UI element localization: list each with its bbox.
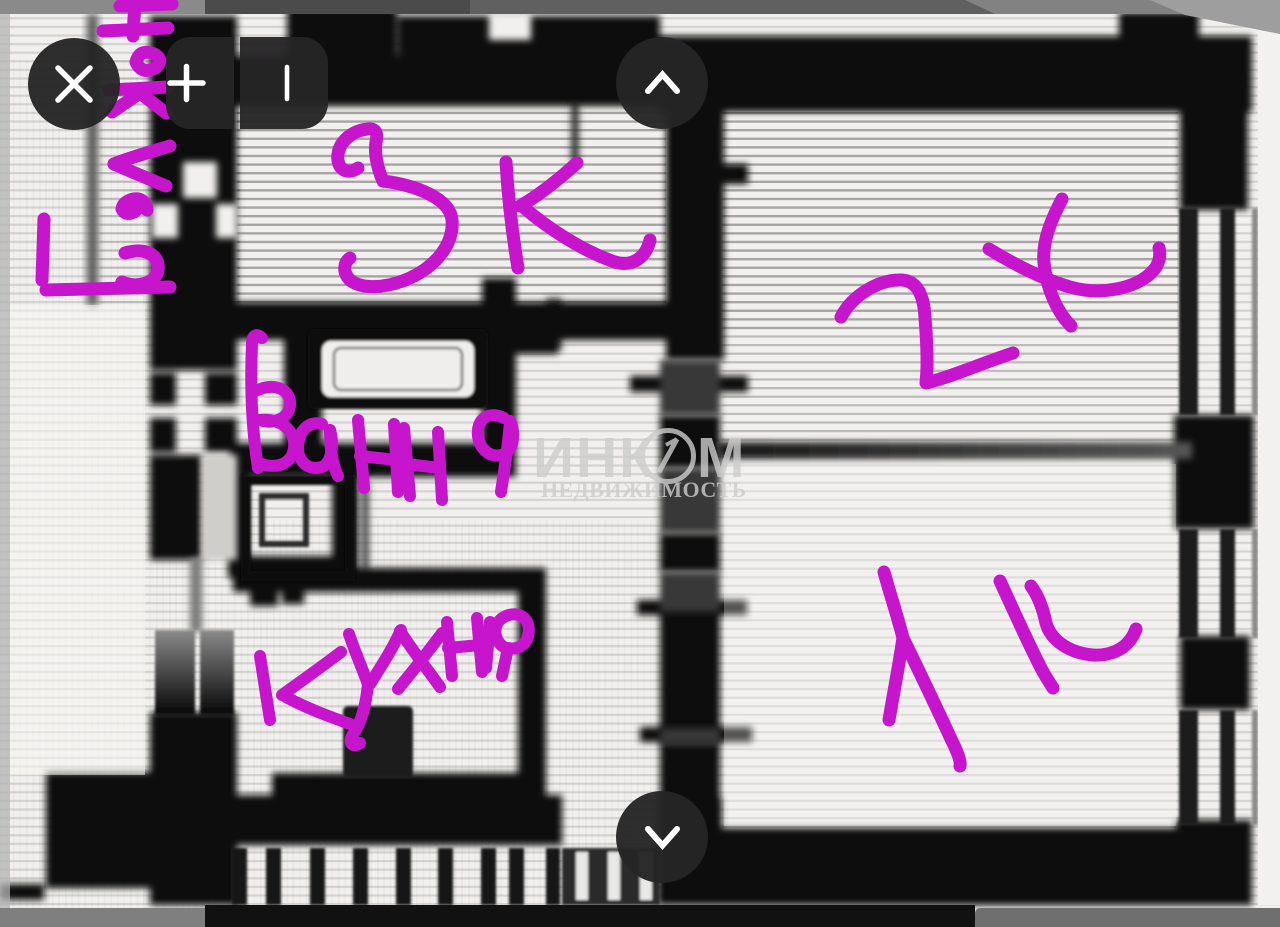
svg-text:НЕДВИЖИМОСТЬ: НЕДВИЖИМОСТЬ xyxy=(541,477,747,502)
